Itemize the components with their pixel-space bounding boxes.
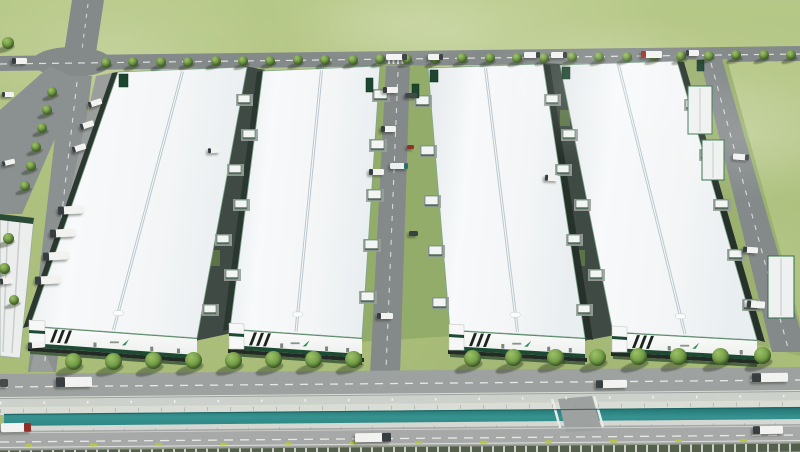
gatehouse-booth bbox=[562, 67, 570, 79]
facade-door bbox=[717, 349, 720, 354]
facade-door bbox=[177, 349, 180, 354]
site-plan bbox=[0, 0, 800, 452]
facade-brand-text bbox=[680, 345, 689, 347]
facade-door bbox=[346, 348, 349, 353]
highway-yellow-dash bbox=[480, 441, 487, 444]
facade-door bbox=[501, 344, 504, 349]
facade-door bbox=[547, 347, 550, 352]
roof-vent-capsule bbox=[113, 311, 123, 316]
facade-door bbox=[280, 343, 283, 348]
facade-door bbox=[740, 350, 743, 355]
highway-yellow-dash bbox=[285, 442, 292, 445]
highway-yellow-dash bbox=[610, 440, 617, 443]
gatehouse-booth bbox=[366, 78, 373, 92]
facade-door bbox=[93, 343, 96, 348]
gatehouse-booth bbox=[697, 60, 704, 71]
facade-door bbox=[569, 348, 572, 353]
roof-vent-capsule bbox=[293, 312, 303, 317]
gatehouse-booth bbox=[412, 84, 419, 98]
alley-2-planting bbox=[560, 110, 570, 126]
facade-door bbox=[668, 346, 671, 351]
highway-yellow-dash bbox=[415, 441, 422, 444]
roof-vent-capsule bbox=[510, 312, 520, 317]
facade-brand-text bbox=[512, 343, 521, 345]
facade-door bbox=[150, 347, 153, 352]
gatehouse-booth bbox=[119, 74, 128, 87]
facade-brand-text bbox=[291, 342, 300, 344]
highway-yellow-dash bbox=[675, 439, 682, 442]
gatehouse-booth bbox=[430, 70, 438, 82]
north-exit-road bbox=[64, 0, 104, 53]
highway-yellow-dash bbox=[220, 443, 227, 446]
highway-yellow-dash bbox=[545, 440, 552, 443]
facade-door bbox=[325, 346, 328, 351]
highway-yellow-dash bbox=[740, 439, 747, 442]
highway-yellow-dash bbox=[155, 443, 162, 446]
facade-brand-text bbox=[110, 341, 119, 343]
highway-yellow-dash bbox=[90, 444, 97, 447]
roof-vent-capsule bbox=[675, 314, 685, 319]
highway-yellow-dash bbox=[350, 442, 357, 445]
aerial-render-canvas: Aerial 3D architectural rendering of a l… bbox=[0, 0, 800, 452]
highway-yellow-dash bbox=[25, 444, 32, 447]
